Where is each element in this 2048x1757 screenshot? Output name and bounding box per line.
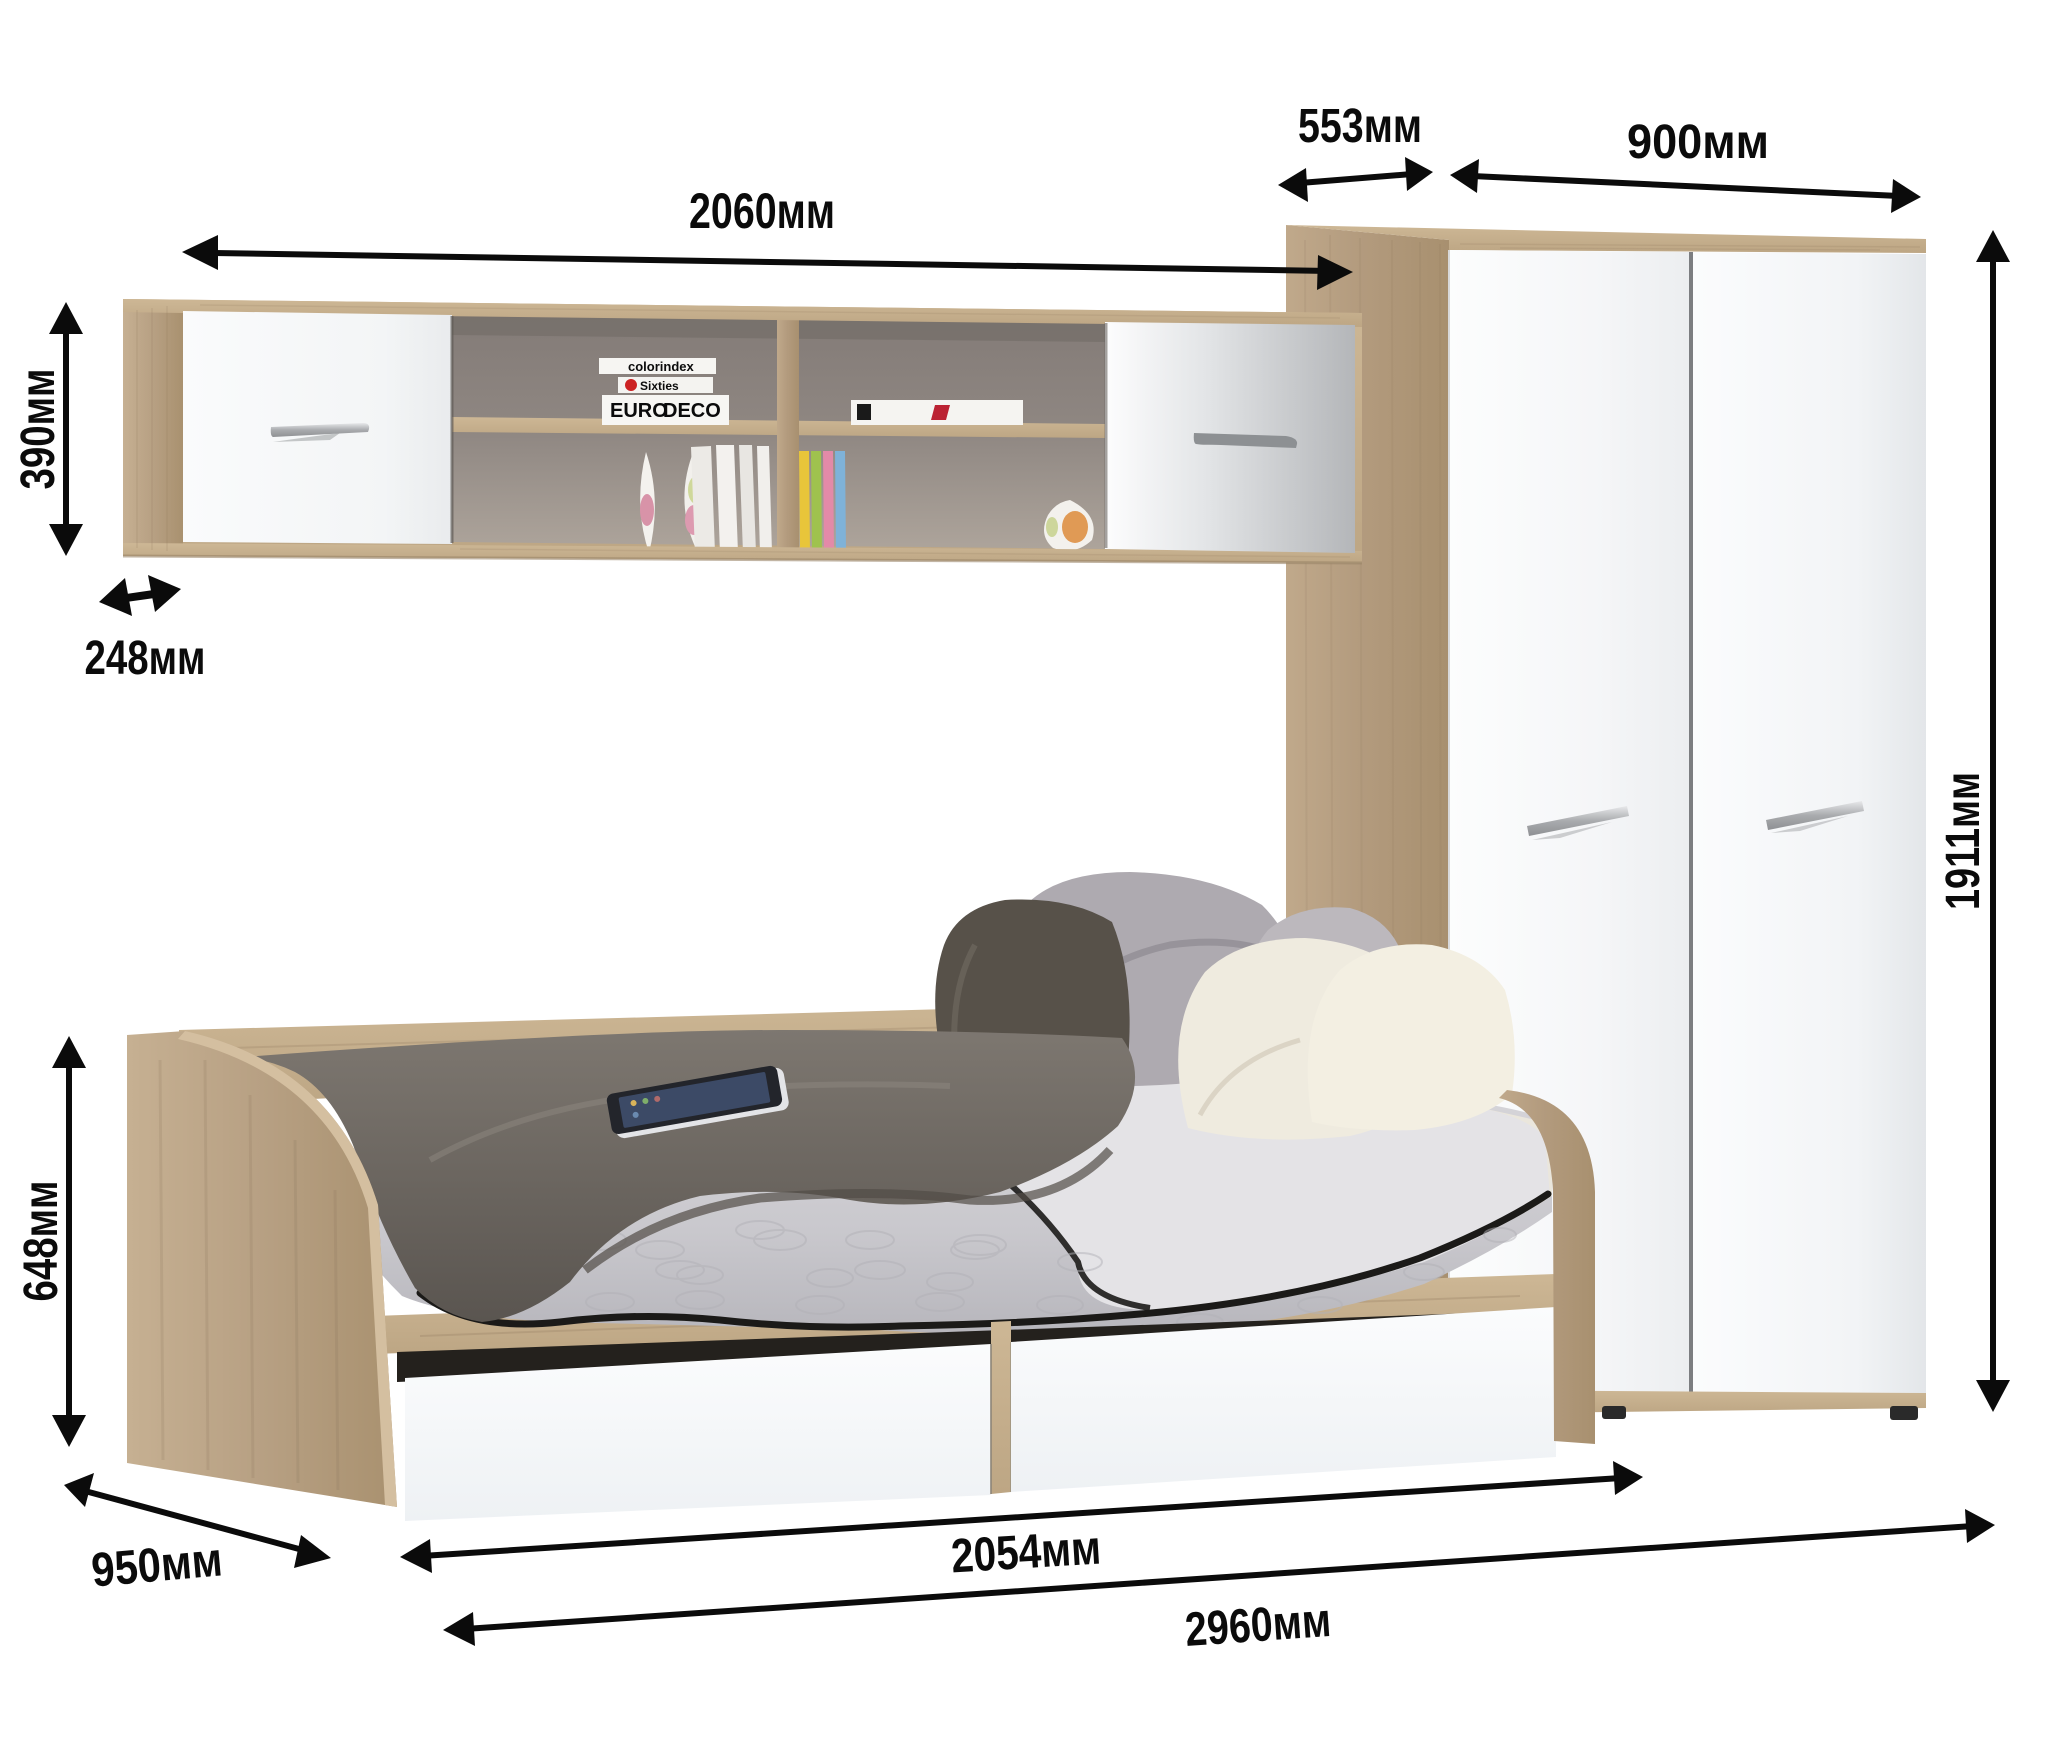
svg-text:648мм: 648мм bbox=[15, 1181, 68, 1302]
svg-text:553мм: 553мм bbox=[1298, 100, 1422, 153]
svg-text:EURO: EURO bbox=[610, 400, 668, 422]
svg-text:390мм: 390мм bbox=[12, 369, 65, 490]
svg-text:2060мм: 2060мм bbox=[689, 183, 835, 239]
svg-text:900мм: 900мм bbox=[1627, 116, 1769, 169]
svg-text:DECO: DECO bbox=[663, 400, 721, 422]
svg-text:1911мм: 1911мм bbox=[1937, 772, 1990, 910]
svg-text:2960мм: 2960мм bbox=[1183, 1594, 1332, 1657]
svg-text:2054мм: 2054мм bbox=[950, 1521, 1103, 1583]
svg-text:Sixties: Sixties bbox=[640, 379, 679, 393]
svg-text:248мм: 248мм bbox=[85, 632, 206, 685]
svg-text:colorindex: colorindex bbox=[628, 359, 695, 374]
